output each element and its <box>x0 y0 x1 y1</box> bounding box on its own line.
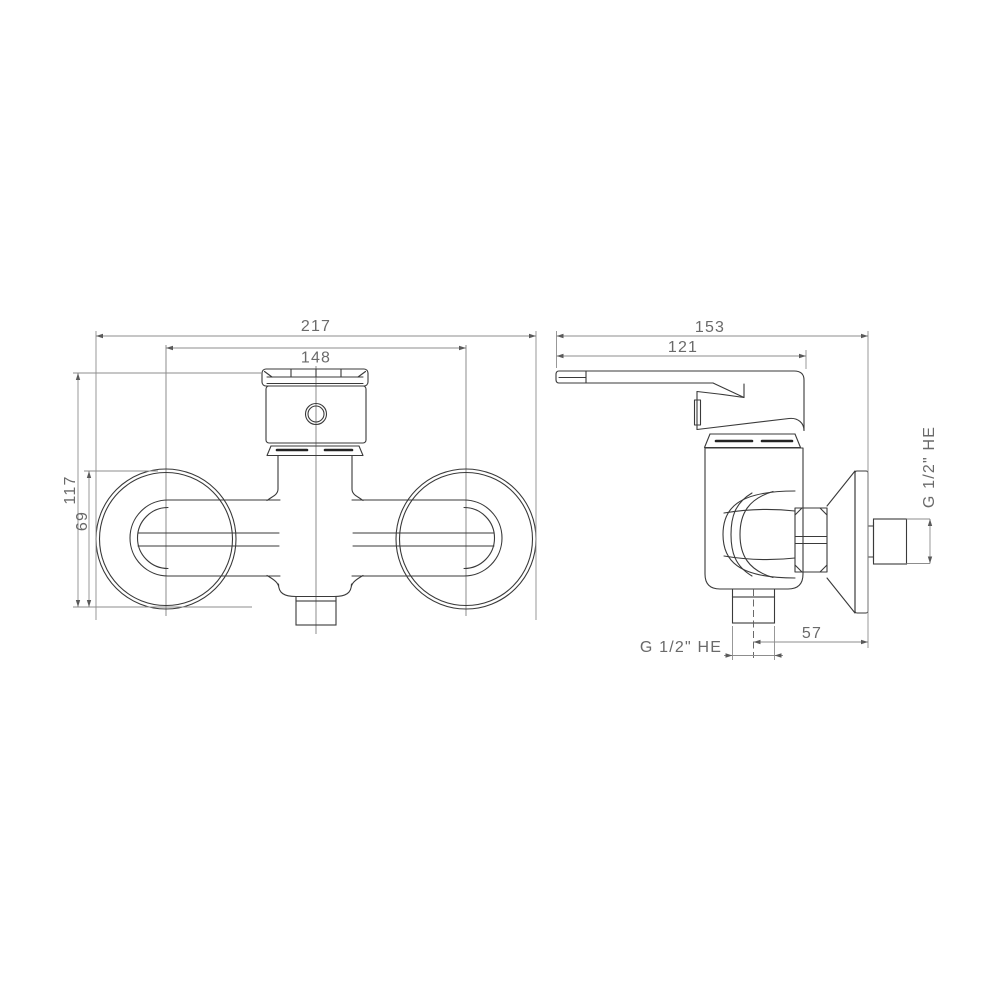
dimension-overall-height: 117 <box>62 373 262 607</box>
valve-body-front <box>267 456 363 597</box>
handle-base-side <box>695 392 805 431</box>
handle-front <box>262 369 368 443</box>
dim-label-148: 148 <box>301 350 331 367</box>
dim-label-57: 57 <box>802 625 822 642</box>
thread-label-outlet: G 1/2" HE <box>640 639 722 656</box>
wall-escutcheon-cone <box>827 471 868 613</box>
shower-mixer-dimensional-drawing: 217 148 117 69 <box>0 0 1000 1000</box>
cartridge-collar-side <box>705 434 801 448</box>
dim-label-217: 217 <box>301 318 331 335</box>
dimension-handle-length: 121 <box>557 339 807 369</box>
wall-nipple-thread <box>868 519 907 564</box>
thread-label-wall: G 1/2" HE <box>921 426 938 508</box>
side-view: 153 121 57 G 1/2" HE <box>556 319 938 660</box>
dimension-outlet-to-wall: 57 <box>754 625 869 644</box>
cartridge-collar-front <box>267 446 363 456</box>
shower-outlet-thread-side <box>733 589 775 658</box>
dimension-overall-depth: 153 <box>557 319 869 648</box>
union-boss-side <box>723 491 795 578</box>
dimension-wall-thread-size: G 1/2" HE <box>907 426 939 564</box>
left-connection-arm <box>130 500 280 576</box>
dimension-outlet-thread-size: G 1/2" HE <box>640 626 783 660</box>
hex-union-nut <box>795 508 827 572</box>
dimension-connection-centers: 148 <box>166 346 466 367</box>
technical-drawing-page: 217 148 117 69 <box>0 0 1000 1000</box>
right-connection-arm <box>352 500 502 576</box>
dim-label-121: 121 <box>668 339 698 356</box>
front-view: 217 148 117 69 <box>62 318 536 634</box>
dim-label-153: 153 <box>695 319 725 336</box>
dim-label-69: 69 <box>74 511 91 531</box>
dimension-escutcheon-diameter: 69 <box>74 471 158 607</box>
dim-label-117: 117 <box>62 475 79 504</box>
